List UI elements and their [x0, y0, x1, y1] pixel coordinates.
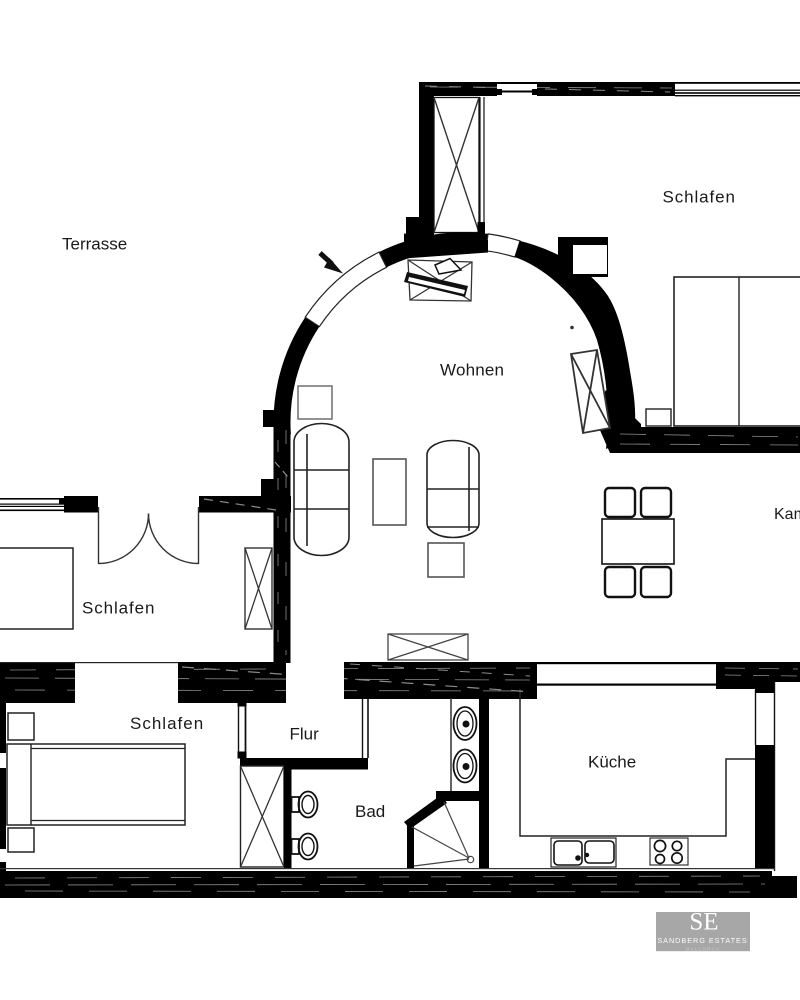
- svg-text:Bad: Bad: [355, 802, 385, 821]
- svg-text:Küche: Küche: [588, 753, 636, 772]
- svg-text:Terrasse: Terrasse: [62, 235, 127, 254]
- svg-text:Wohnen: Wohnen: [440, 361, 504, 380]
- svg-text:Flur: Flur: [290, 725, 320, 744]
- svg-text:Schlafen: Schlafen: [663, 188, 736, 207]
- svg-text:Schlafen: Schlafen: [130, 714, 204, 733]
- svg-text:SE: SE: [689, 909, 718, 936]
- svg-text:Kamin: Kamin: [774, 506, 800, 523]
- svg-text:SANDBERG ESTATES: SANDBERG ESTATES: [657, 936, 747, 945]
- svg-text:MALLORCA: MALLORCA: [686, 947, 721, 952]
- svg-text:Schlafen: Schlafen: [82, 599, 155, 618]
